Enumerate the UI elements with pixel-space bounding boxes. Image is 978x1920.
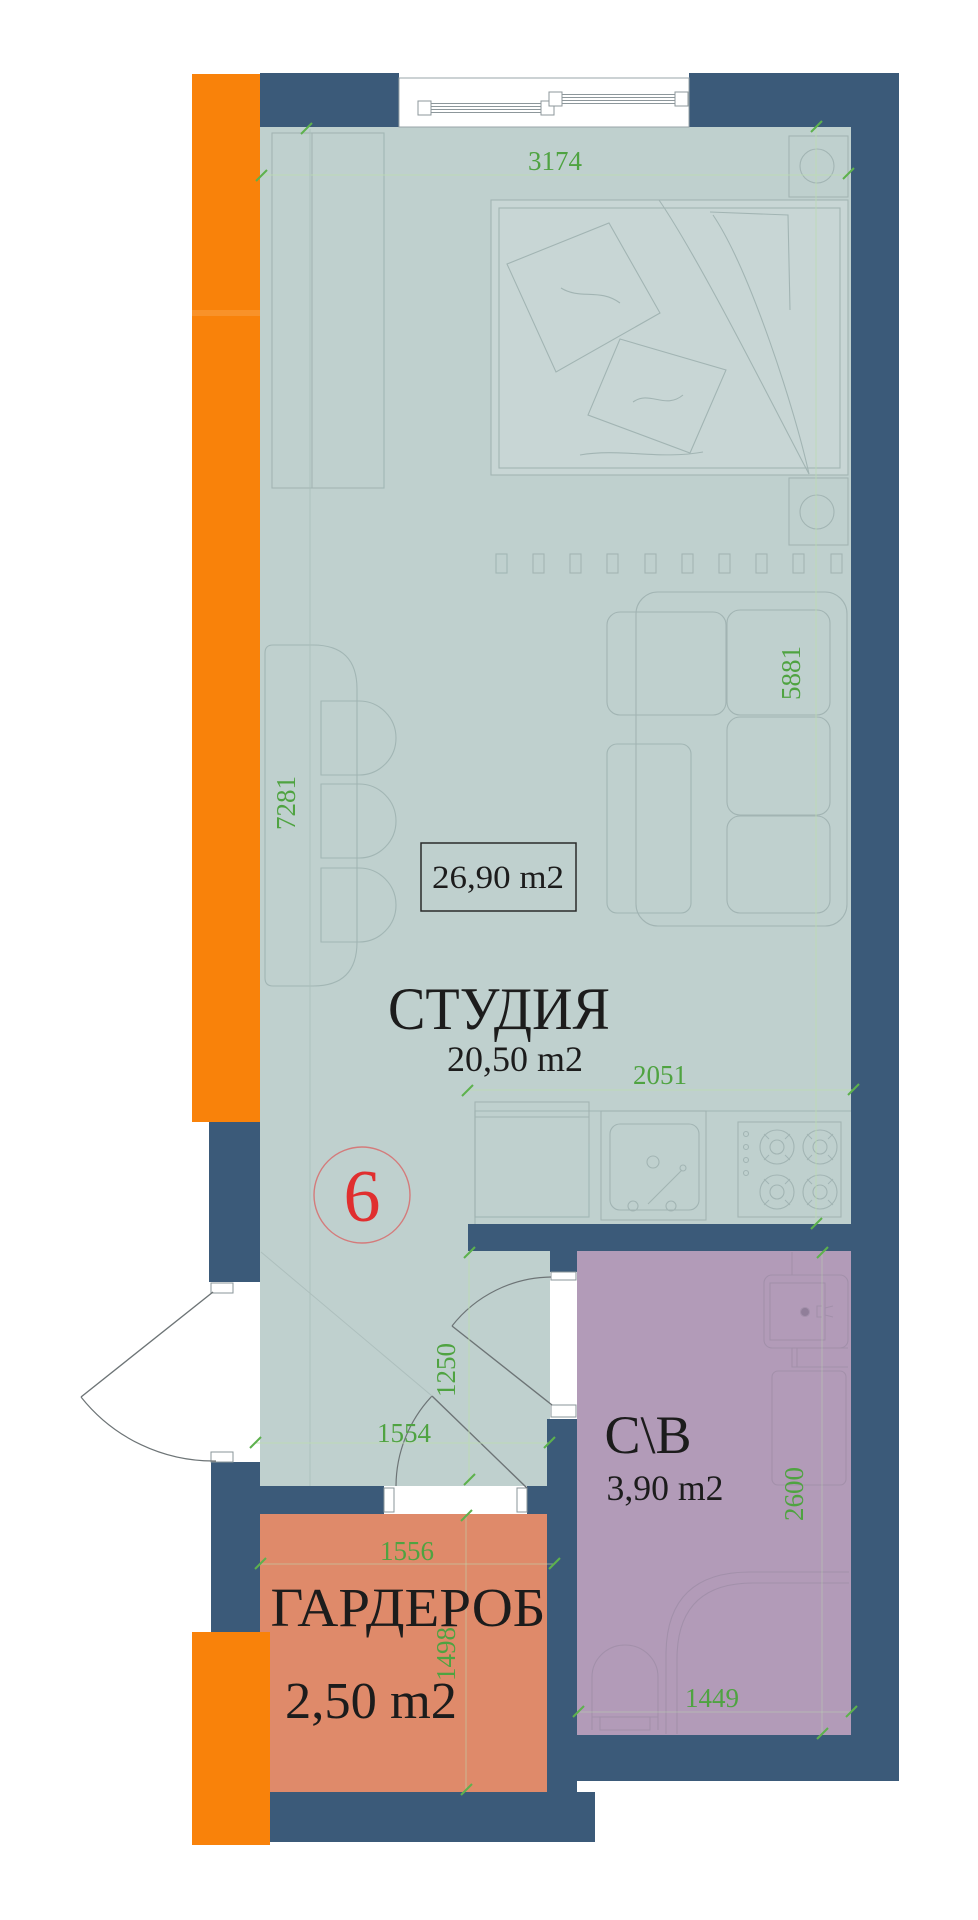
svg-text:1554: 1554 [377,1418,432,1448]
svg-text:2051: 2051 [633,1060,687,1090]
svg-text:6: 6 [344,1156,381,1238]
svg-text:3,90 m2: 3,90 m2 [607,1468,724,1508]
svg-text:5881: 5881 [776,646,806,700]
svg-text:1556: 1556 [380,1536,434,1566]
svg-text:СТУДИЯ: СТУДИЯ [388,976,610,1042]
svg-text:7281: 7281 [271,776,301,830]
svg-text:3174: 3174 [528,146,583,176]
svg-text:С\В: С\В [604,1405,691,1465]
svg-text:ГАРДЕРОБ: ГАРДЕРОБ [271,1577,546,1638]
svg-text:1449: 1449 [685,1683,739,1713]
svg-text:26,90 m2: 26,90 m2 [432,860,564,896]
svg-text:2,50 m2: 2,50 m2 [285,1673,457,1730]
svg-text:1250: 1250 [431,1343,461,1397]
svg-text:2600: 2600 [779,1467,809,1521]
svg-text:20,50 m2: 20,50 m2 [447,1039,583,1079]
